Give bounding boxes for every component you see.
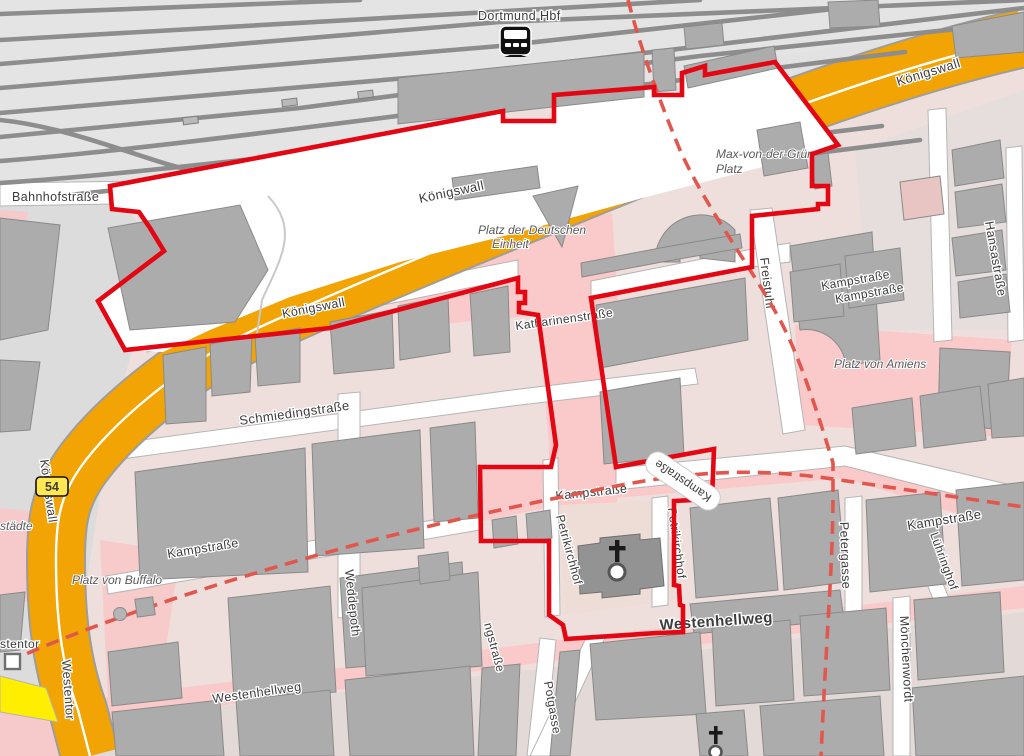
svg-text:städte: städte [0,519,33,533]
svg-text:Dortmund Hbf: Dortmund Hbf [478,9,561,23]
svg-text:Petergasse: Petergasse [837,522,853,590]
svg-text:54: 54 [45,480,59,494]
svg-text:Platz der Deutschen: Platz der Deutschen [478,223,586,237]
svg-text:Max-von-der-Grün: Max-von-der-Grün [716,147,814,161]
svg-text:Platz von Buffalo: Platz von Buffalo [72,573,162,587]
svg-text:Bahnhofstraße: Bahnhofstraße [12,190,99,204]
svg-text:Platz: Platz [716,162,743,176]
svg-text:Einheit: Einheit [492,237,529,251]
svg-text:Platz von Amiens: Platz von Amiens [834,357,926,371]
